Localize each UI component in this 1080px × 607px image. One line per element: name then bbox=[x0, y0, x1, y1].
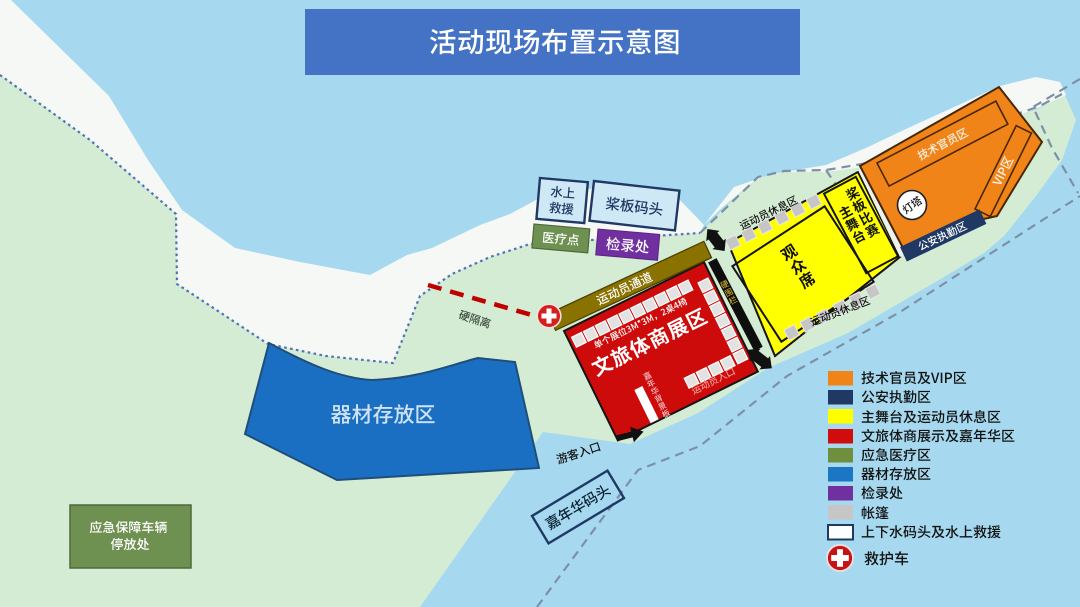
svg-text:主舞台及运动员休息区: 主舞台及运动员休息区 bbox=[861, 407, 1001, 427]
svg-text:水上救援: 水上救援 bbox=[548, 181, 576, 218]
svg-text:技术官员及VIP区: 技术官员及VIP区 bbox=[861, 368, 967, 388]
svg-text:公安执勤区: 公安执勤区 bbox=[861, 387, 931, 407]
svg-text:器材存放区: 器材存放区 bbox=[331, 399, 436, 429]
svg-text:活动现场布置示意图: 活动现场布置示意图 bbox=[429, 20, 681, 60]
svg-text:上下水码头及水上救援: 上下水码头及水上救援 bbox=[861, 522, 1001, 542]
svg-text:器材存放区: 器材存放区 bbox=[861, 464, 931, 484]
svg-text:文旅体商展示及嘉年华区: 文旅体商展示及嘉年华区 bbox=[861, 426, 1015, 446]
svg-text:检录处: 检录处 bbox=[605, 233, 651, 258]
svg-text:检录处: 检录处 bbox=[861, 483, 903, 503]
svg-text:医疗点: 医疗点 bbox=[541, 227, 580, 249]
svg-text:帐篷: 帐篷 bbox=[861, 503, 889, 523]
svg-text:应急医疗区: 应急医疗区 bbox=[861, 445, 931, 465]
svg-text:救护车: 救护车 bbox=[864, 548, 909, 569]
